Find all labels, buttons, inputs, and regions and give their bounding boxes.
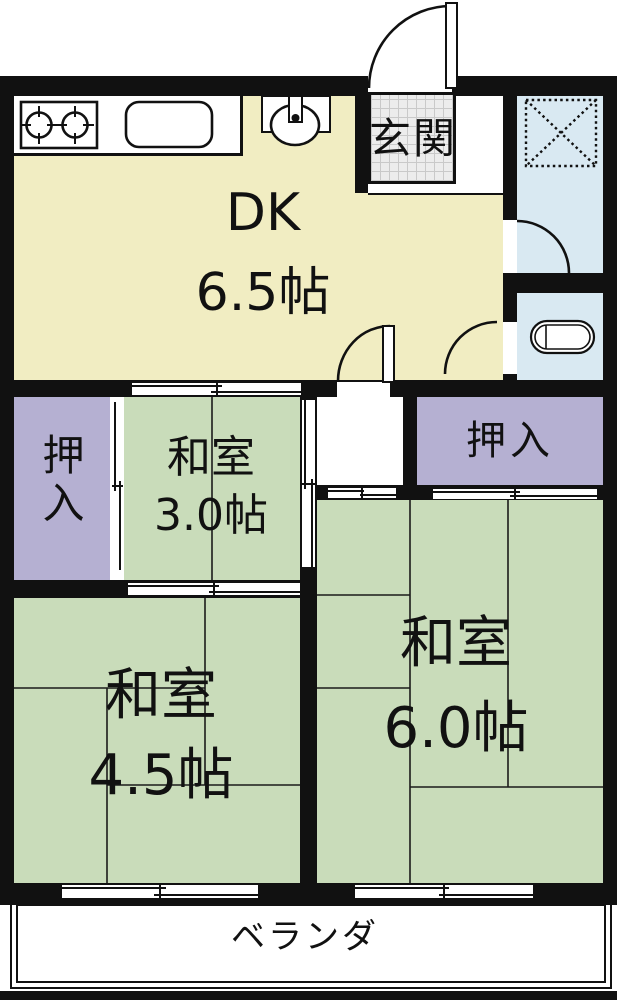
sliding-door-oshiire-right-bottom: [433, 489, 597, 499]
wall-bath-divider: [517, 273, 603, 293]
washitsu-45-name: 和室: [88, 656, 233, 736]
sliding-door-washitsu3-bottom: [128, 583, 300, 595]
kitchen-counter: [14, 96, 243, 156]
room-bathroom: [517, 293, 603, 380]
floor-plan: DK 6.5帖 玄関 押入 和室 3.0帖 押入 和室 6.0帖 和室 4.5帖…: [0, 0, 617, 1000]
sliding-door-washitsu3-top: [132, 383, 301, 395]
bathroom-door-opening: [503, 322, 517, 374]
sliding-door-hallway-bottom: [328, 488, 396, 498]
window-washitsu-6: [355, 885, 533, 898]
wall-right: [603, 76, 617, 905]
washitsu-3-label: 和室 3.0帖: [154, 429, 268, 545]
washitsu-6-name: 和室: [383, 601, 528, 686]
room-washroom: [517, 96, 603, 273]
washitsu-6-label: 和室 6.0帖: [383, 601, 528, 771]
wall-genkan-left: [355, 80, 368, 193]
washitsu-3-size: 3.0帖: [154, 487, 268, 545]
wall-hallway-right: [403, 380, 417, 500]
wall-left: [0, 76, 14, 905]
window-washitsu-45: [62, 885, 258, 898]
genkan-label: 玄関: [369, 118, 457, 160]
dk-size: 6.5帖: [196, 253, 331, 333]
washitsu-3-name: 和室: [154, 429, 268, 487]
hallway-door-opening: [337, 382, 390, 397]
oshiire-left-label: 押入: [39, 433, 81, 529]
washitsu-45-size: 4.5帖: [88, 736, 233, 816]
veranda-label: ベランダ: [231, 920, 379, 954]
wall-top: [0, 76, 617, 96]
dk-name: DK: [196, 173, 331, 253]
oshiire-right-label: 押入: [466, 421, 554, 461]
washroom-door-opening: [503, 220, 517, 273]
wall-bottom-bar: [0, 991, 617, 1000]
sliding-door-oshiire-left: [112, 402, 123, 570]
dk-label: DK 6.5帖: [196, 173, 331, 333]
washitsu-45-label: 和室 4.5帖: [88, 656, 233, 816]
room-hallway: [317, 397, 403, 485]
sliding-door-washitsu3-right: [302, 400, 315, 567]
washitsu-6-size: 6.0帖: [383, 686, 528, 771]
